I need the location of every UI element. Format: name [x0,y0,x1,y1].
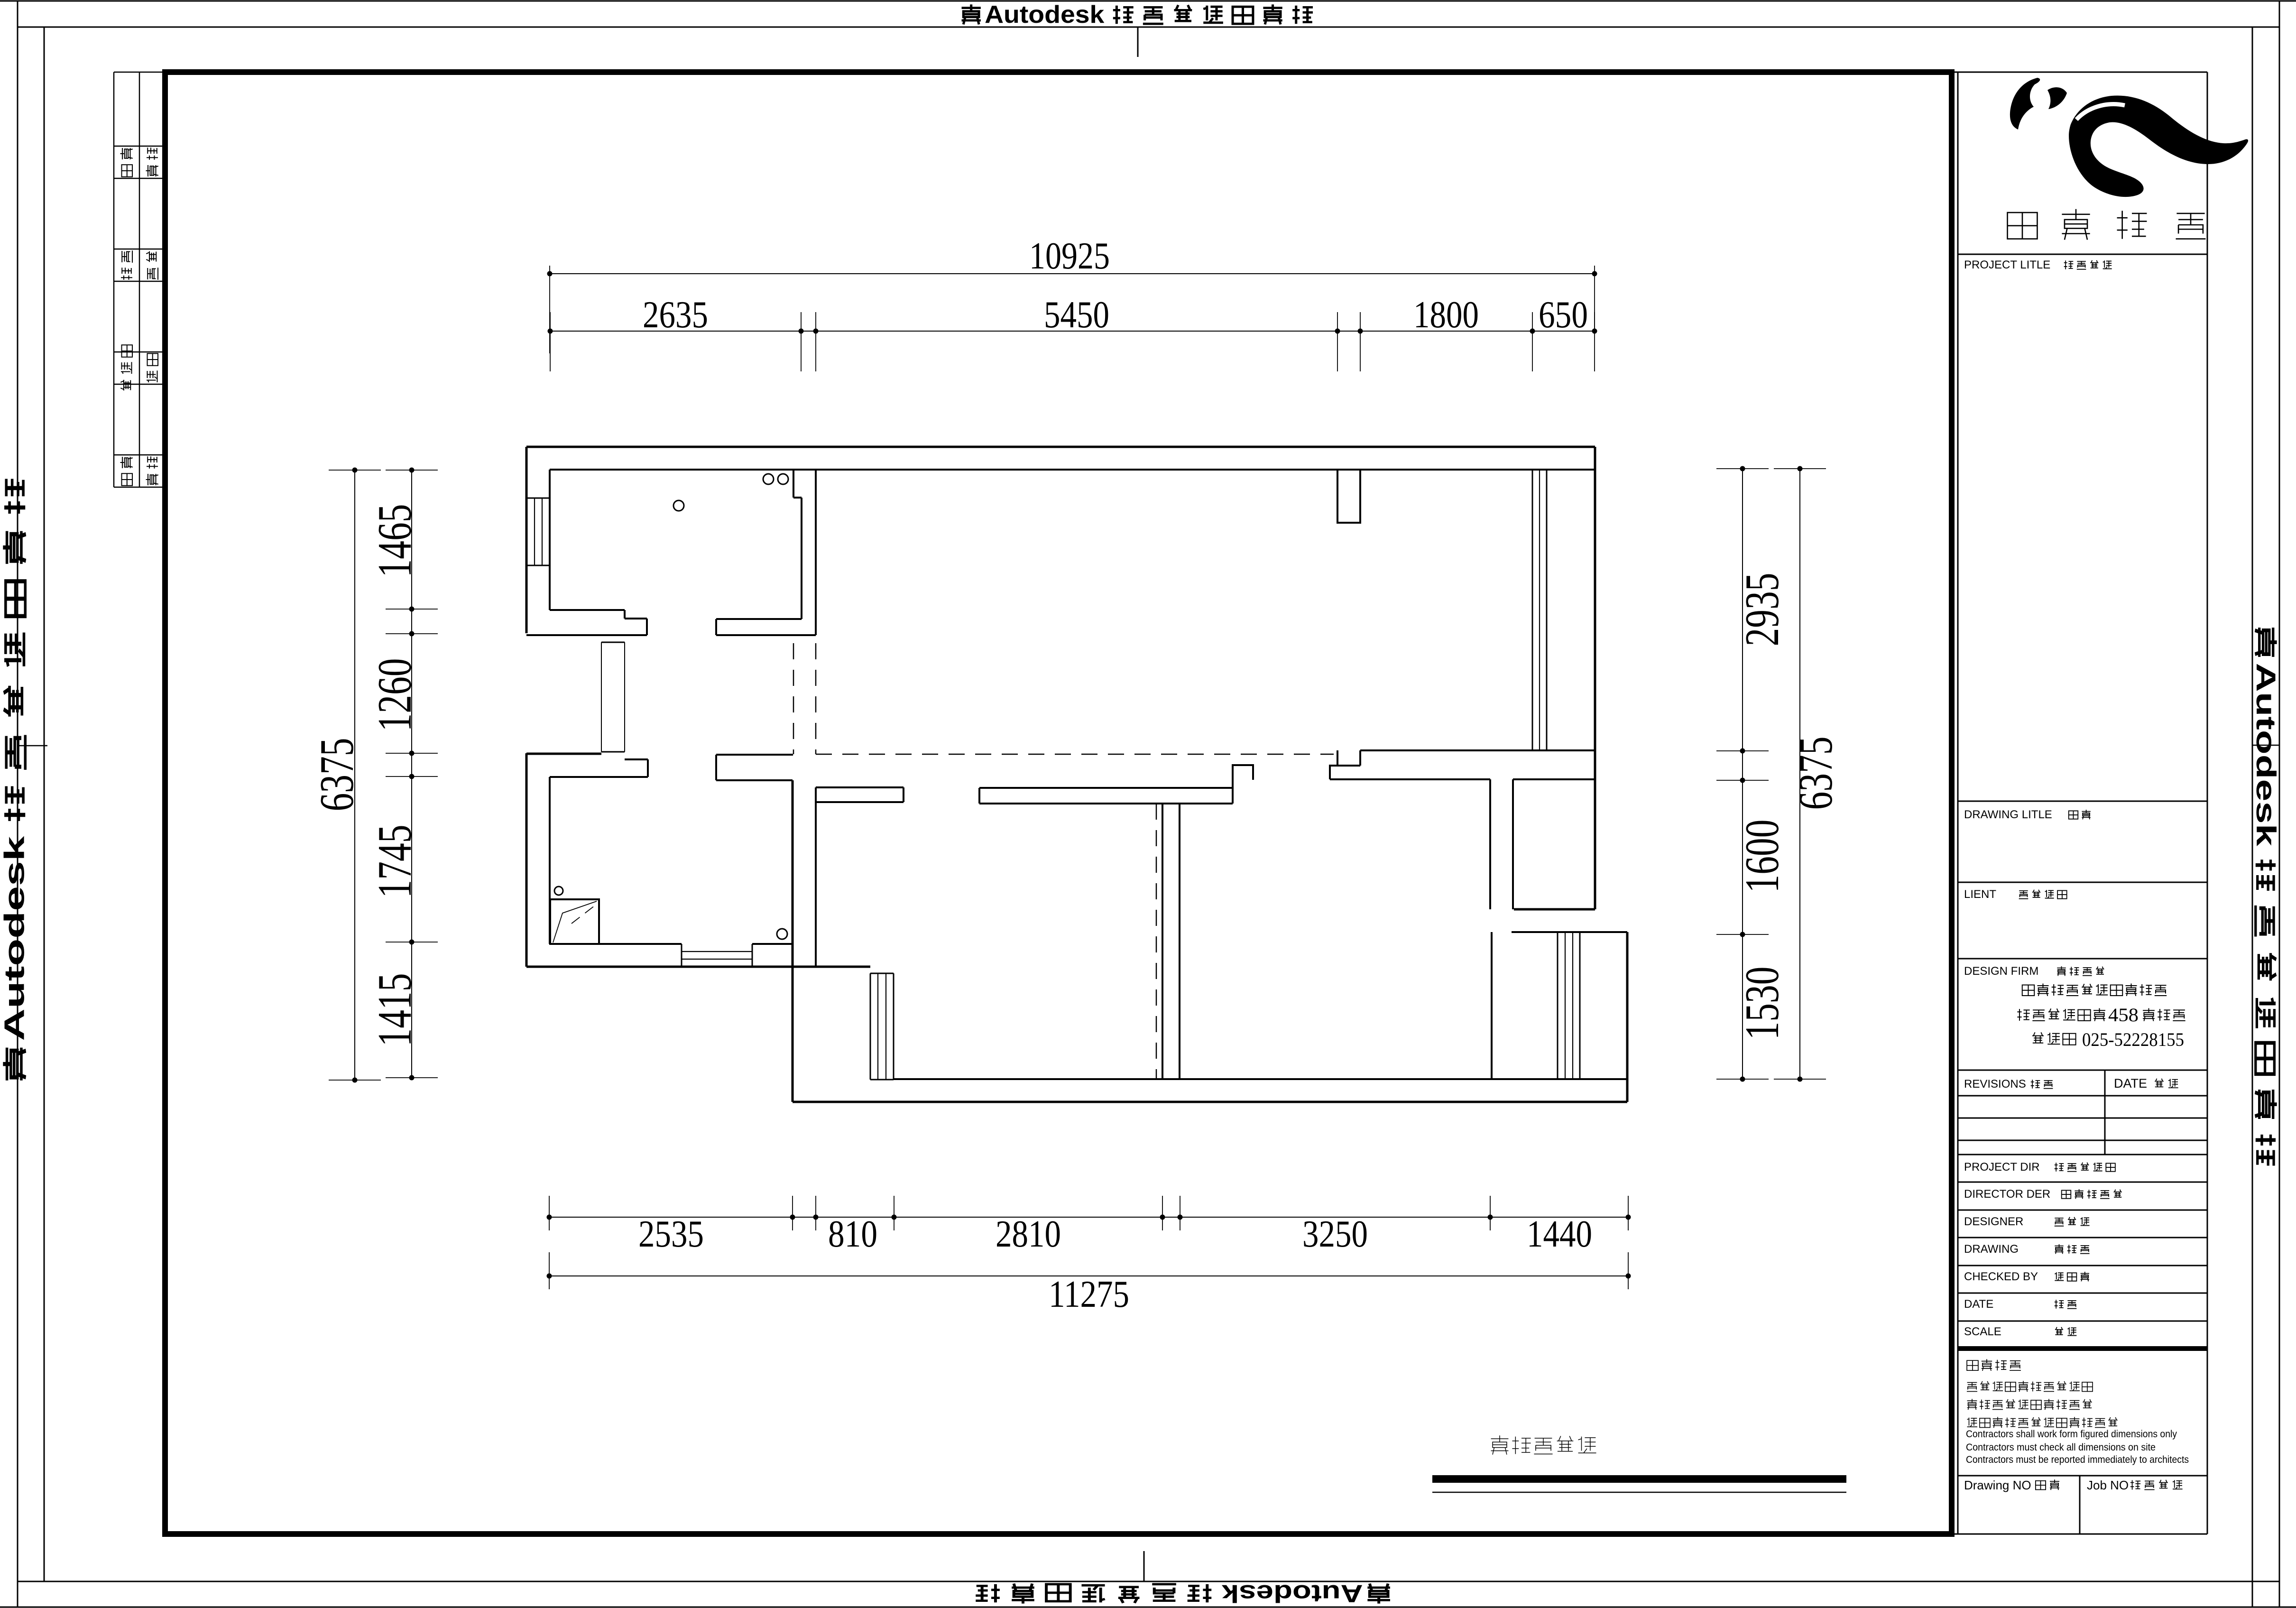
svg-text:1260: 1260 [368,658,422,732]
svg-text:DESIGN FIRM: DESIGN FIRM [1964,965,2038,978]
svg-text:2535: 2535 [638,1213,704,1255]
svg-text:2935: 2935 [1735,573,1789,647]
svg-text:025-52228155: 025-52228155 [2082,1029,2184,1050]
svg-text:2810: 2810 [996,1213,1061,1255]
svg-text:3250: 3250 [1302,1213,1368,1255]
svg-text:Contractors must be reported i: Contractors must be reported immediately… [1966,1454,2189,1465]
svg-text:6375: 6375 [310,738,364,812]
svg-text:10925: 10925 [1029,235,1110,277]
svg-text:1800: 1800 [1413,294,1479,336]
svg-text:DRAWING: DRAWING [1964,1243,2019,1256]
svg-text:LIENT: LIENT [1964,888,1996,901]
svg-text:1530: 1530 [1735,967,1789,1040]
svg-text:810: 810 [828,1213,877,1255]
svg-text:DESIGNER: DESIGNER [1964,1215,2023,1228]
svg-text:REVISIONS: REVISIONS [1964,1078,2026,1090]
svg-text:DATE: DATE [2114,1076,2147,1090]
svg-text:1440: 1440 [1527,1213,1592,1255]
svg-text:458: 458 [2108,1004,2139,1026]
svg-text:PROJECT DIR: PROJECT DIR [1964,1161,2040,1174]
svg-text:DIRECTOR DER: DIRECTOR DER [1964,1188,2050,1201]
svg-text:1600: 1600 [1735,820,1789,893]
svg-text:Drawing NO: Drawing NO [1964,1478,2031,1492]
svg-text:PROJECT LITLE: PROJECT LITLE [1964,259,2050,271]
svg-text:1465: 1465 [368,504,422,578]
svg-text:1745: 1745 [368,825,422,898]
svg-text:DATE: DATE [1964,1298,1993,1311]
svg-text:6375: 6375 [1789,737,1843,810]
svg-text:Contractors shall work form fi: Contractors shall work form figured dime… [1966,1429,2177,1440]
svg-text:Job NO: Job NO [2087,1478,2129,1492]
svg-text:2635: 2635 [643,294,708,336]
svg-text:11275: 11275 [1049,1274,1129,1315]
svg-text:Contractors must check all dim: Contractors must check all dimensions on… [1966,1442,2156,1453]
svg-text:DRAWING LITLE: DRAWING LITLE [1964,808,2052,821]
svg-text:5450: 5450 [1044,294,1109,336]
svg-text:650: 650 [1539,294,1588,336]
svg-text:1415: 1415 [368,973,422,1047]
svg-text:SCALE: SCALE [1964,1325,2001,1338]
svg-text:CHECKED BY: CHECKED BY [1964,1270,2038,1283]
